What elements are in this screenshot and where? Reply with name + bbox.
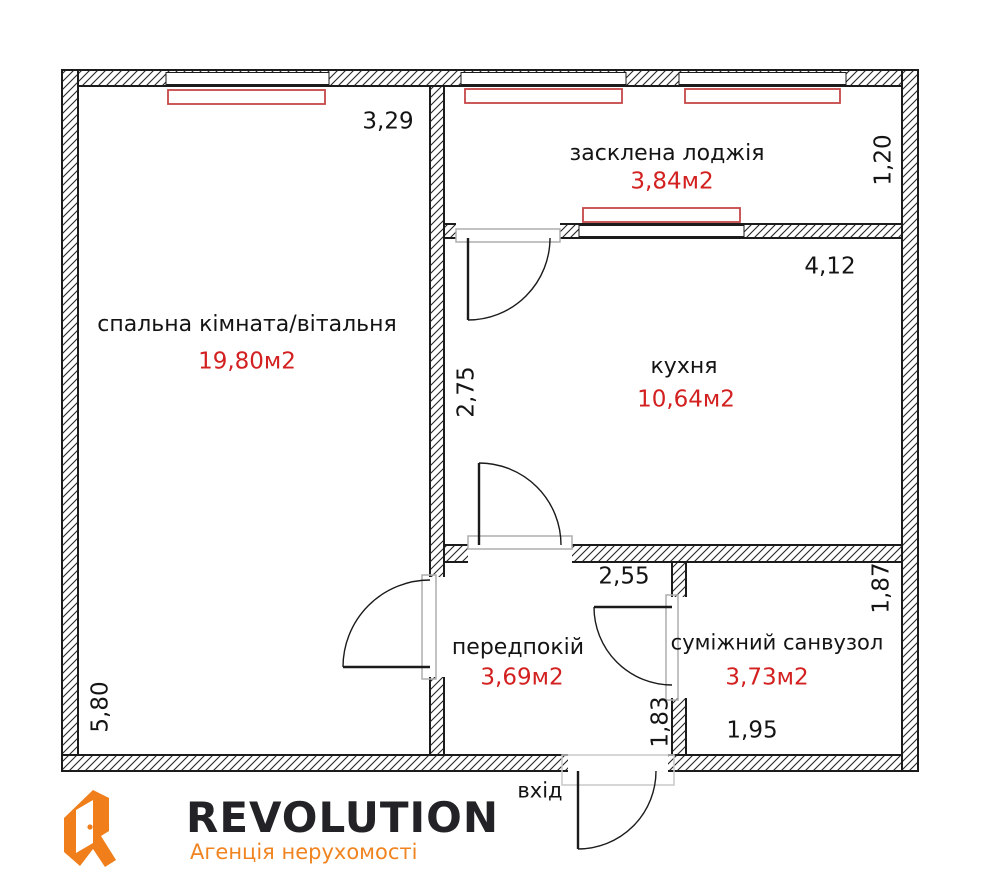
dim-bathroom-depth: 1,87 [871, 562, 894, 613]
dim-hallway-width: 2,55 [598, 566, 649, 589]
loggia-window-right [679, 73, 846, 104]
hallway-area: 3,69м2 [480, 667, 563, 690]
floor-plan-drawing [0, 0, 1000, 894]
entrance-label: вхід [517, 781, 562, 802]
dim-kitchen-width: 4,12 [804, 256, 855, 279]
door-bedroom-hallway [343, 575, 446, 679]
wall-left [62, 70, 78, 771]
hallway-name: передпокій [452, 637, 584, 659]
dim-loggia-depth: 1,20 [873, 134, 896, 185]
loggia-window-bottom [579, 208, 744, 237]
bedroom-window [166, 73, 329, 105]
bathroom-area: 3,73м2 [725, 667, 808, 690]
door-loggia-kitchen [456, 222, 560, 320]
kitchen-name: кухня [651, 356, 718, 378]
loggia-window-left [461, 73, 626, 104]
logo-door-icon [60, 789, 116, 869]
wall-bottom [62, 755, 918, 771]
door-handle-dot [87, 824, 92, 829]
dim-hallway-door: 1,83 [650, 696, 673, 747]
kitchen-area: 10,64м2 [637, 389, 735, 412]
dim-bedroom-width: 3,29 [362, 111, 413, 134]
dim-kitchen-height: 2,75 [456, 366, 479, 417]
logo-tagline: Агенція нерухомості [190, 842, 417, 863]
dim-bathroom-width: 1,95 [726, 720, 777, 743]
bedroom-area: 19,80м2 [198, 351, 296, 374]
door-kitchen-hallway [468, 463, 572, 564]
loggia-name: засклена лоджія [570, 143, 765, 165]
door-entrance [562, 753, 674, 849]
bathroom-name: суміжний санвузол [671, 633, 884, 654]
bedroom-name: спальна кімната/вітальня [97, 314, 396, 336]
wall-right [902, 70, 918, 771]
logo-text: REVOLUTION [186, 797, 499, 839]
floor-plan-canvas: спальна кімната/вітальня 19,80м2 засклен… [0, 0, 1000, 894]
dim-bedroom-height: 5,80 [90, 681, 113, 732]
loggia-area: 3,84м2 [630, 171, 713, 194]
